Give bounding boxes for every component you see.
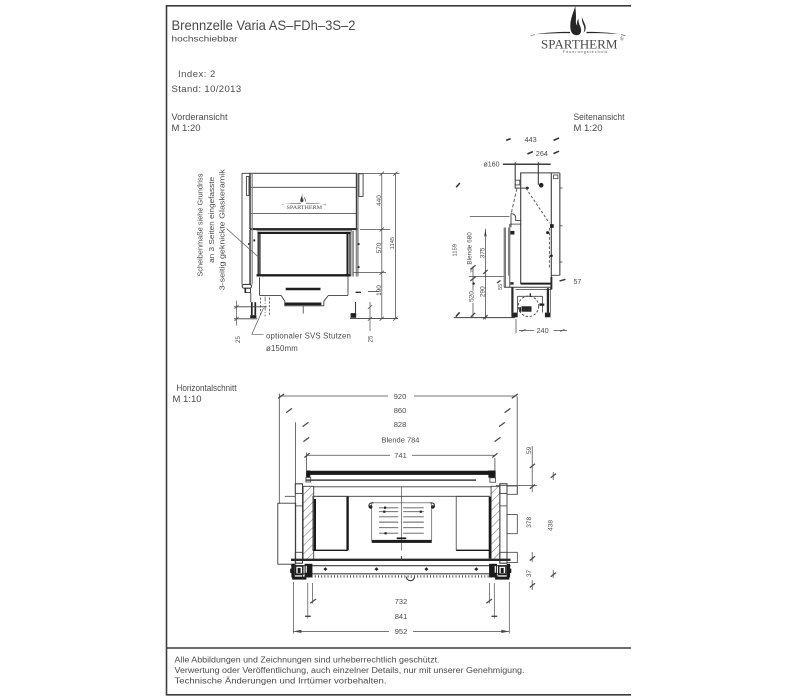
- svg-text:828: 828: [394, 420, 407, 429]
- svg-text:75: 75: [469, 268, 474, 273]
- svg-text:hochschiebbar: hochschiebbar: [172, 34, 238, 44]
- svg-text:190: 190: [376, 285, 383, 296]
- svg-text:240: 240: [537, 326, 549, 335]
- svg-text:ø160: ø160: [484, 162, 500, 169]
- svg-text:M 1:20: M 1:20: [574, 123, 603, 134]
- svg-text:SVS: SVS: [523, 308, 531, 312]
- svg-text:Horizontalschnitt: Horizontalschnitt: [177, 383, 237, 394]
- svg-text:438: 438: [547, 520, 554, 531]
- svg-text:Vorderansicht: Vorderansicht: [172, 112, 228, 123]
- svg-text:37: 37: [526, 570, 533, 578]
- svg-text:Blende 784: Blende 784: [382, 435, 420, 444]
- svg-text:optionaler SVS Stutzen: optionaler SVS Stutzen: [266, 332, 351, 341]
- svg-text:570: 570: [376, 242, 383, 253]
- svg-text:440: 440: [376, 195, 383, 206]
- svg-text:Verwertung oder Veröffentlichu: Verwertung oder Veröffentlichung, auch e…: [175, 666, 525, 675]
- svg-text:ø150mm: ø150mm: [266, 344, 298, 353]
- svg-text:Alle Abbildungen und Zeichnung: Alle Abbildungen und Zeichnungen sind ur…: [175, 656, 440, 665]
- svg-text:®: ®: [325, 203, 327, 207]
- svg-text:443: 443: [525, 135, 537, 144]
- svg-text:920: 920: [394, 392, 407, 401]
- svg-text:741: 741: [394, 451, 407, 460]
- svg-text:375: 375: [480, 247, 487, 258]
- svg-text:M 1:20: M 1:20: [172, 123, 201, 134]
- svg-text:Brennzelle Varia AS–FDh–3S–2: Brennzelle Varia AS–FDh–3S–2: [172, 17, 356, 33]
- svg-text:1145: 1145: [390, 236, 396, 249]
- svg-text:Technische Änderungen und Irrt: Technische Änderungen und Irrtümer vorbe…: [175, 677, 387, 686]
- svg-text:290: 290: [480, 286, 487, 297]
- svg-text:25: 25: [367, 335, 374, 342]
- svg-text:Scheibenmaße siehe Grundriss: Scheibenmaße siehe Grundriss: [196, 173, 205, 276]
- svg-text:3-seitig geknickte Glaskeramik: 3-seitig geknickte Glaskeramik: [218, 169, 227, 290]
- svg-text:841: 841: [395, 612, 408, 621]
- svg-text:SPARTHERM: SPARTHERM: [287, 205, 323, 211]
- svg-text:57: 57: [574, 279, 582, 286]
- svg-text:1159: 1159: [453, 244, 459, 257]
- svg-text:378: 378: [526, 516, 533, 527]
- svg-text:25: 25: [235, 336, 242, 343]
- svg-text:Feuerungstechnik: Feuerungstechnik: [563, 50, 608, 54]
- svg-text:732: 732: [395, 597, 408, 606]
- svg-text:®: ®: [620, 36, 624, 43]
- svg-text:520: 520: [468, 291, 475, 302]
- svg-text:264: 264: [536, 149, 548, 158]
- svg-text:Stand: 10/2013: Stand: 10/2013: [172, 84, 242, 95]
- svg-text:59: 59: [526, 446, 533, 454]
- svg-text:Index: 2: Index: 2: [178, 69, 216, 80]
- svg-text:860: 860: [394, 406, 407, 415]
- svg-text:an 3 Seiten eingefasste: an 3 Seiten eingefasste: [207, 177, 216, 263]
- svg-text:Blende 680: Blende 680: [467, 232, 474, 265]
- svg-text:952: 952: [395, 627, 408, 636]
- svg-text:55: 55: [498, 284, 504, 290]
- svg-text:M 1:10: M 1:10: [173, 394, 202, 405]
- svg-text:Seitenansicht: Seitenansicht: [574, 112, 625, 123]
